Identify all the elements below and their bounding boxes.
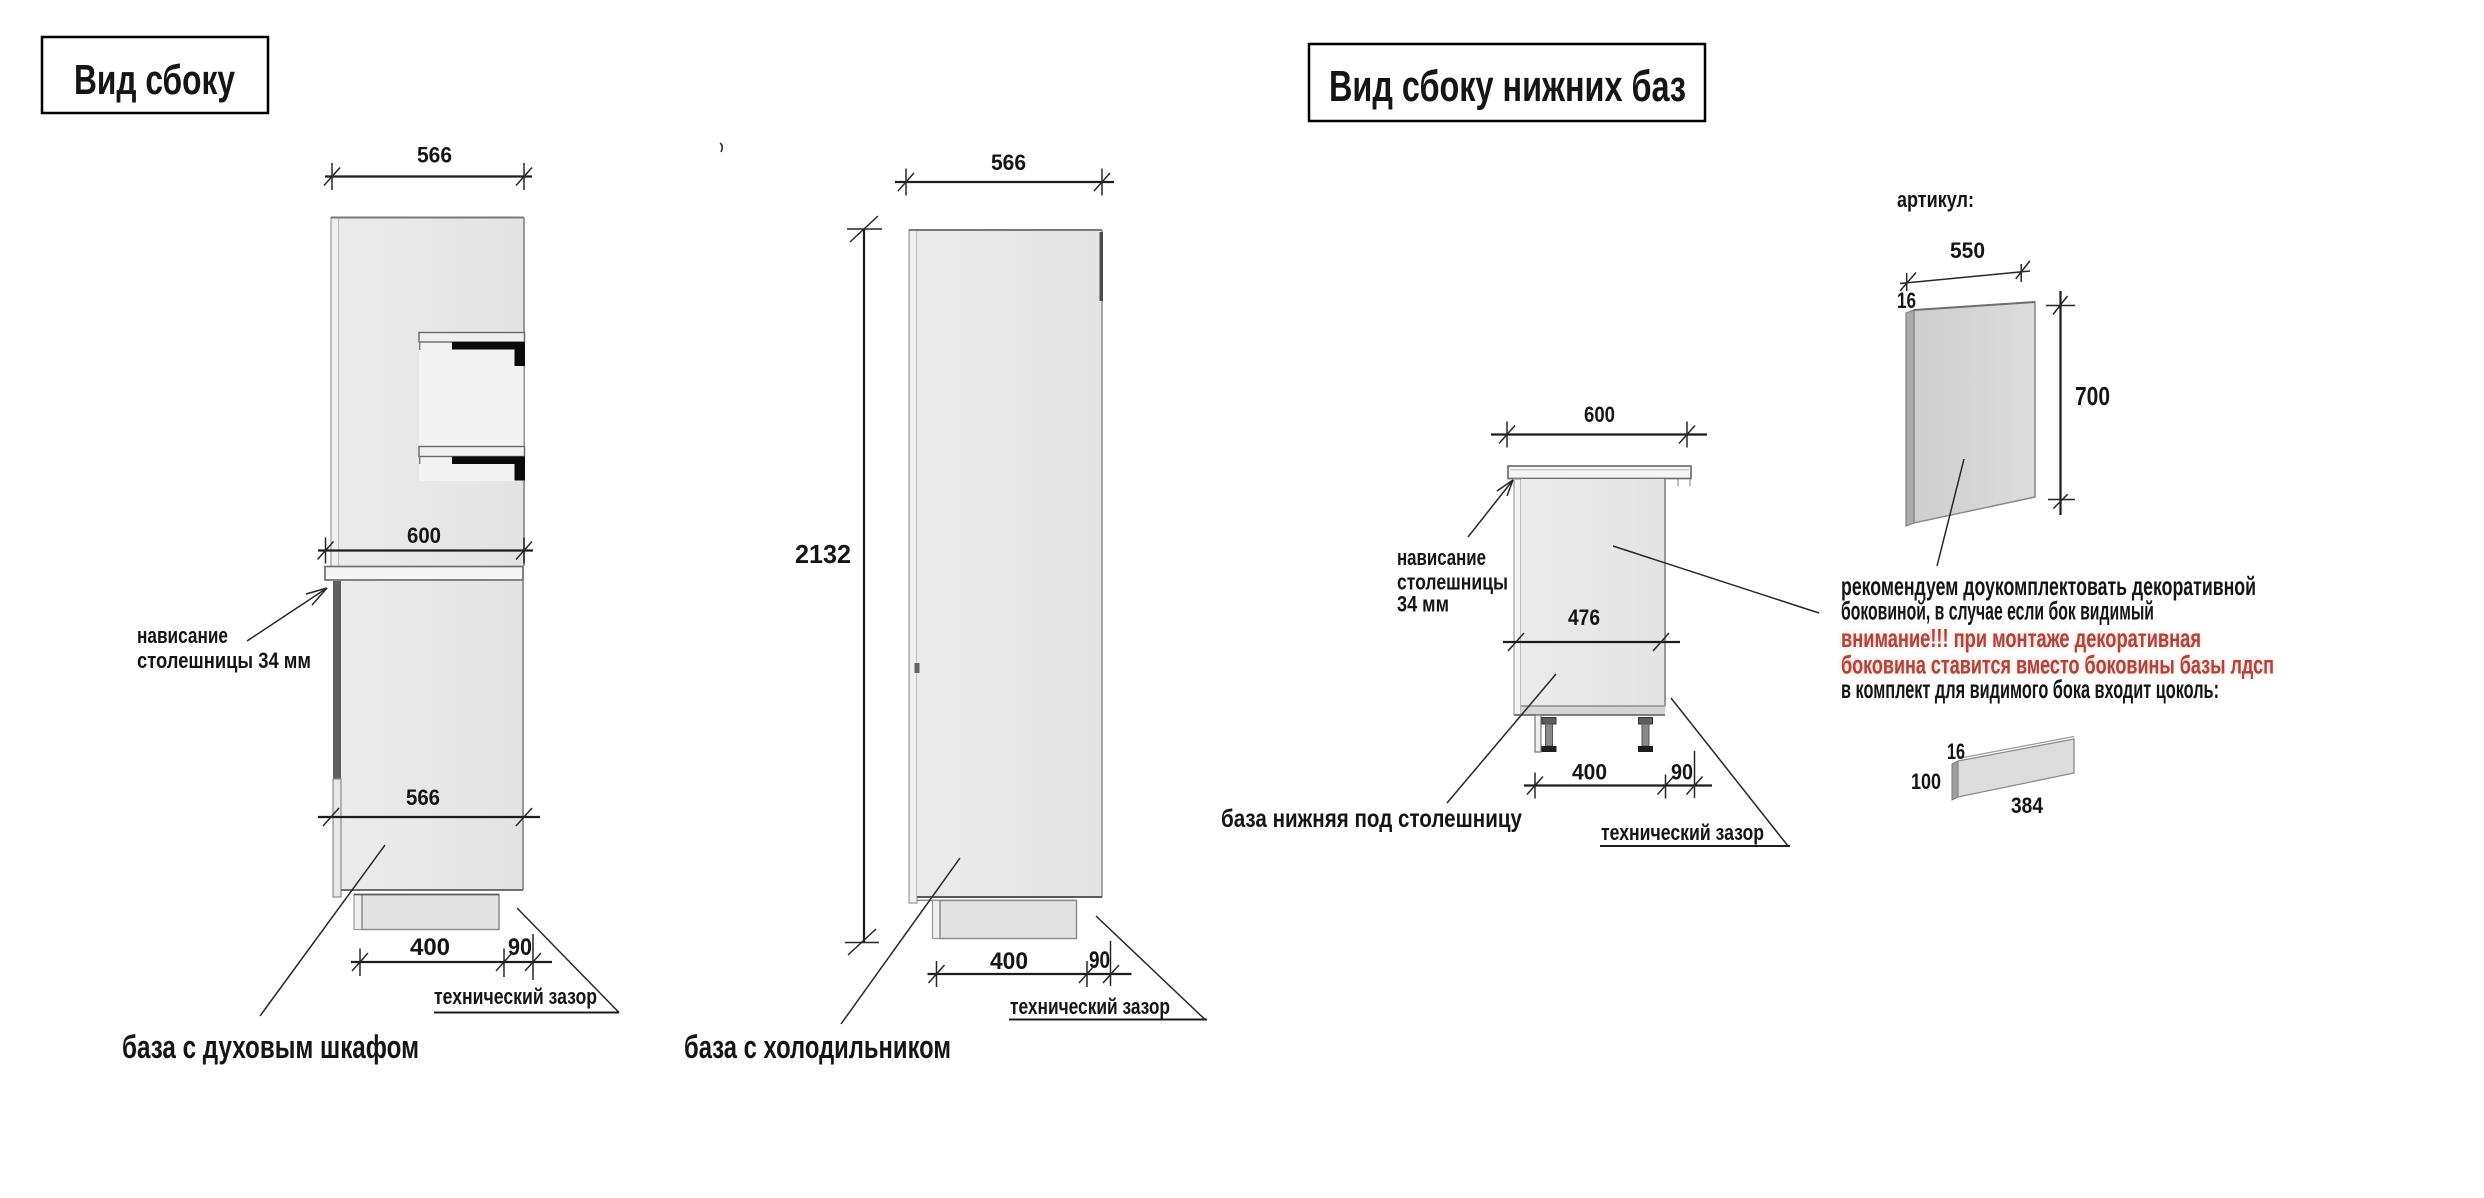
svg-text:технический зазор: технический зазор (1601, 820, 1764, 845)
svg-text:технический зазор: технический зазор (1010, 994, 1170, 1019)
svg-text:в комплект для видимого бока в: в комплект для видимого бока входит цоко… (1841, 674, 2219, 704)
svg-text:артикул:: артикул: (1897, 187, 1974, 212)
svg-text:600: 600 (1584, 402, 1615, 427)
svg-text:566: 566 (406, 785, 440, 810)
svg-text:16: 16 (1897, 288, 1916, 313)
svg-text:34 мм: 34 мм (1397, 592, 1449, 617)
svg-text:Вид сбоку: Вид сбоку (74, 56, 235, 103)
svg-text:технический зазор: технический зазор (434, 984, 597, 1009)
svg-text:90: 90 (1089, 947, 1110, 974)
svg-text:база нижняя под столешницу: база нижняя под столешницу (1221, 805, 1522, 833)
svg-text:700: 700 (2075, 381, 2110, 411)
svg-text:566: 566 (991, 150, 1026, 175)
svg-text:600: 600 (407, 523, 441, 548)
svg-text:боковиной, в случае если бок в: боковиной, в случае если бок видимый (1841, 596, 2154, 626)
svg-text:400: 400 (1572, 760, 1607, 785)
svg-text:566: 566 (417, 143, 452, 168)
svg-text:16: 16 (1947, 739, 1965, 764)
svg-text:нависание: нависание (137, 623, 228, 648)
svg-text:база с холодильником: база с холодильником (684, 1029, 951, 1065)
svg-text:384: 384 (2011, 793, 2044, 818)
svg-text:476: 476 (1568, 605, 1600, 630)
svg-text:90: 90 (1671, 760, 1693, 785)
svg-text:100: 100 (1911, 769, 1941, 794)
svg-text:столешницы 34 мм: столешницы 34 мм (137, 648, 311, 673)
svg-text:400: 400 (410, 934, 450, 961)
svg-text:Вид сбоку нижних баз: Вид сбоку нижних баз (1329, 62, 1686, 111)
svg-text:нависание: нависание (1397, 545, 1486, 570)
svg-text:90: 90 (508, 934, 532, 961)
svg-text:400: 400 (990, 948, 1028, 975)
svg-text:база с духовым шкафом: база с духовым шкафом (122, 1029, 419, 1065)
svg-text:550: 550 (1950, 238, 1985, 263)
svg-text:внимание!!! при монтаже декора: внимание!!! при монтаже декоративная (1841, 623, 2201, 653)
svg-text:2132: 2132 (795, 539, 851, 569)
